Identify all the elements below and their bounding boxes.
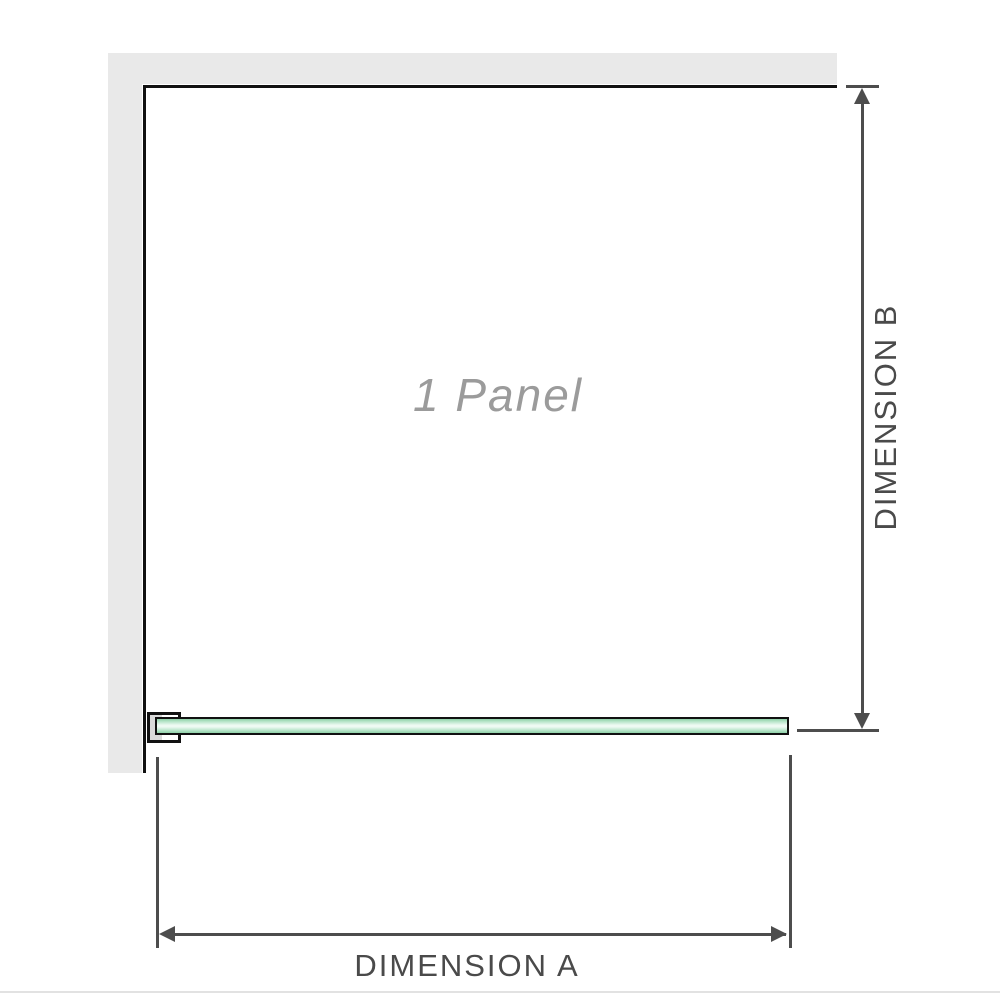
dimension-b-arrow-down-icon	[854, 713, 870, 729]
dimension-a-line	[168, 933, 786, 936]
dimension-a-label: DIMENSION A	[354, 948, 579, 984]
dimension-b-label: DIMENSION B	[868, 304, 904, 531]
dimension-a-arrow-right-icon	[771, 926, 787, 942]
dimension-b-line	[861, 100, 864, 716]
glass-panel	[155, 717, 789, 735]
dimension-a-extension-right	[789, 755, 792, 948]
dimension-a-extension-left	[156, 757, 159, 948]
wall-left	[108, 53, 142, 773]
dimension-b-tick-bottom	[797, 729, 879, 732]
enclosure-outline-left	[143, 85, 146, 773]
dimension-a-arrow-left-icon	[159, 926, 175, 942]
baseline-divider	[0, 991, 1000, 993]
enclosure-outline-top	[143, 85, 837, 88]
panel-count-label: 1 Panel	[298, 368, 698, 422]
panel-dimension-diagram: 1 Panel DIMENSION B DIMENSION A	[0, 0, 1000, 1000]
dimension-b-arrow-up-icon	[854, 88, 870, 104]
wall-top	[108, 53, 837, 84]
